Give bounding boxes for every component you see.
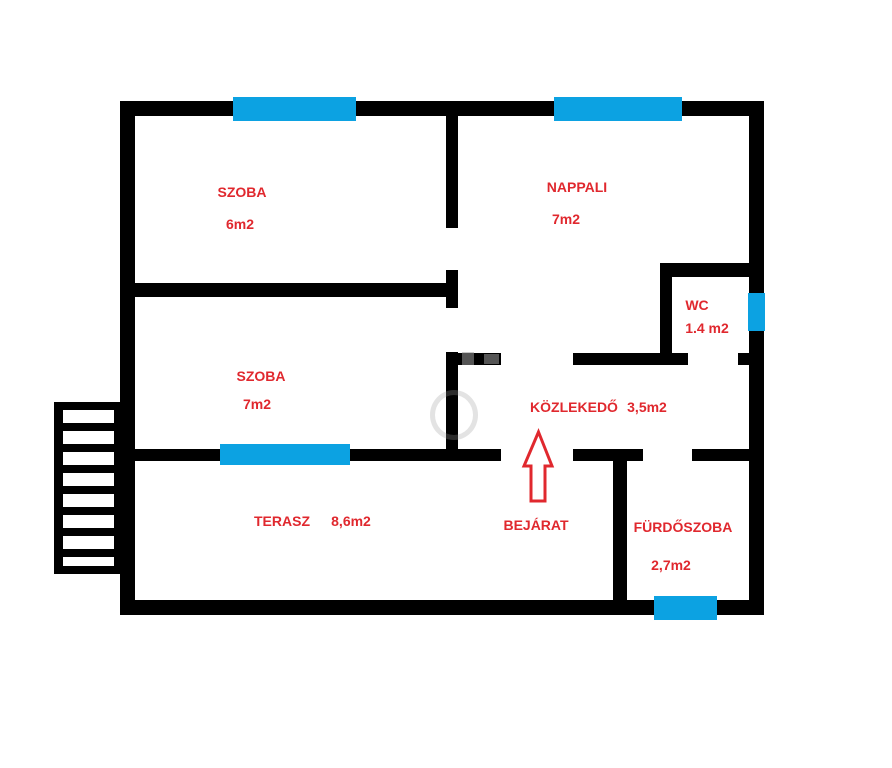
window-szoba1-icon [233, 97, 356, 121]
room-name-terasz: TERASZ [254, 514, 310, 528]
watermark-fragment [484, 354, 499, 364]
room-name-nappali: NAPPALI [547, 180, 607, 194]
room-name-szoba-2: SZOBA [237, 369, 286, 383]
window-nappali-icon [554, 97, 682, 121]
wall-core-vertical-middle [446, 270, 458, 308]
room-name-szoba-1: SZOBA [218, 185, 267, 199]
stairs-steps [63, 410, 114, 566]
room-area-szoba-2: 7m2 [243, 397, 271, 411]
entrance-label: BEJÁRAT [503, 518, 568, 532]
wall-nappali-kozlekedo-c [738, 353, 749, 365]
wall-terasz-top-c [692, 449, 749, 461]
room-name-kozlekedo: KÖZLEKEDŐ [530, 400, 618, 414]
window-furdoszoba-icon [654, 596, 717, 620]
room-area-szoba-1: 6m2 [226, 217, 254, 231]
floor-plan: SZOBA 6m2 NAPPALI 7m2 WC 1.4 m2 SZOBA 7m… [0, 0, 892, 768]
wall-wc-top [660, 263, 749, 277]
room-name-furdoszoba: FÜRDŐSZOBA [634, 520, 733, 534]
wall-terasz-top-b [573, 449, 643, 461]
wall-wc-left [660, 263, 672, 365]
entrance-arrow-icon [518, 428, 558, 506]
room-area-furdoszoba: 2,7m2 [651, 558, 691, 572]
wall-furdoszoba-left [613, 449, 627, 615]
stairs-icon [54, 402, 123, 574]
room-area-kozlekedo: 3,5m2 [627, 400, 667, 414]
window-szoba2-icon [220, 444, 350, 465]
room-area-wc: 1.4 m2 [685, 321, 729, 335]
room-area-terasz: 8,6m2 [331, 514, 371, 528]
wall-szoba-divider [120, 283, 458, 297]
window-wc-icon [748, 293, 765, 331]
watermark-fragment [462, 352, 474, 365]
wall-core-vertical-upper [446, 101, 458, 228]
room-name-wc: WC [685, 298, 708, 312]
room-area-nappali: 7m2 [552, 212, 580, 226]
watermark-ring-icon [430, 390, 478, 440]
wall-right [749, 101, 764, 615]
